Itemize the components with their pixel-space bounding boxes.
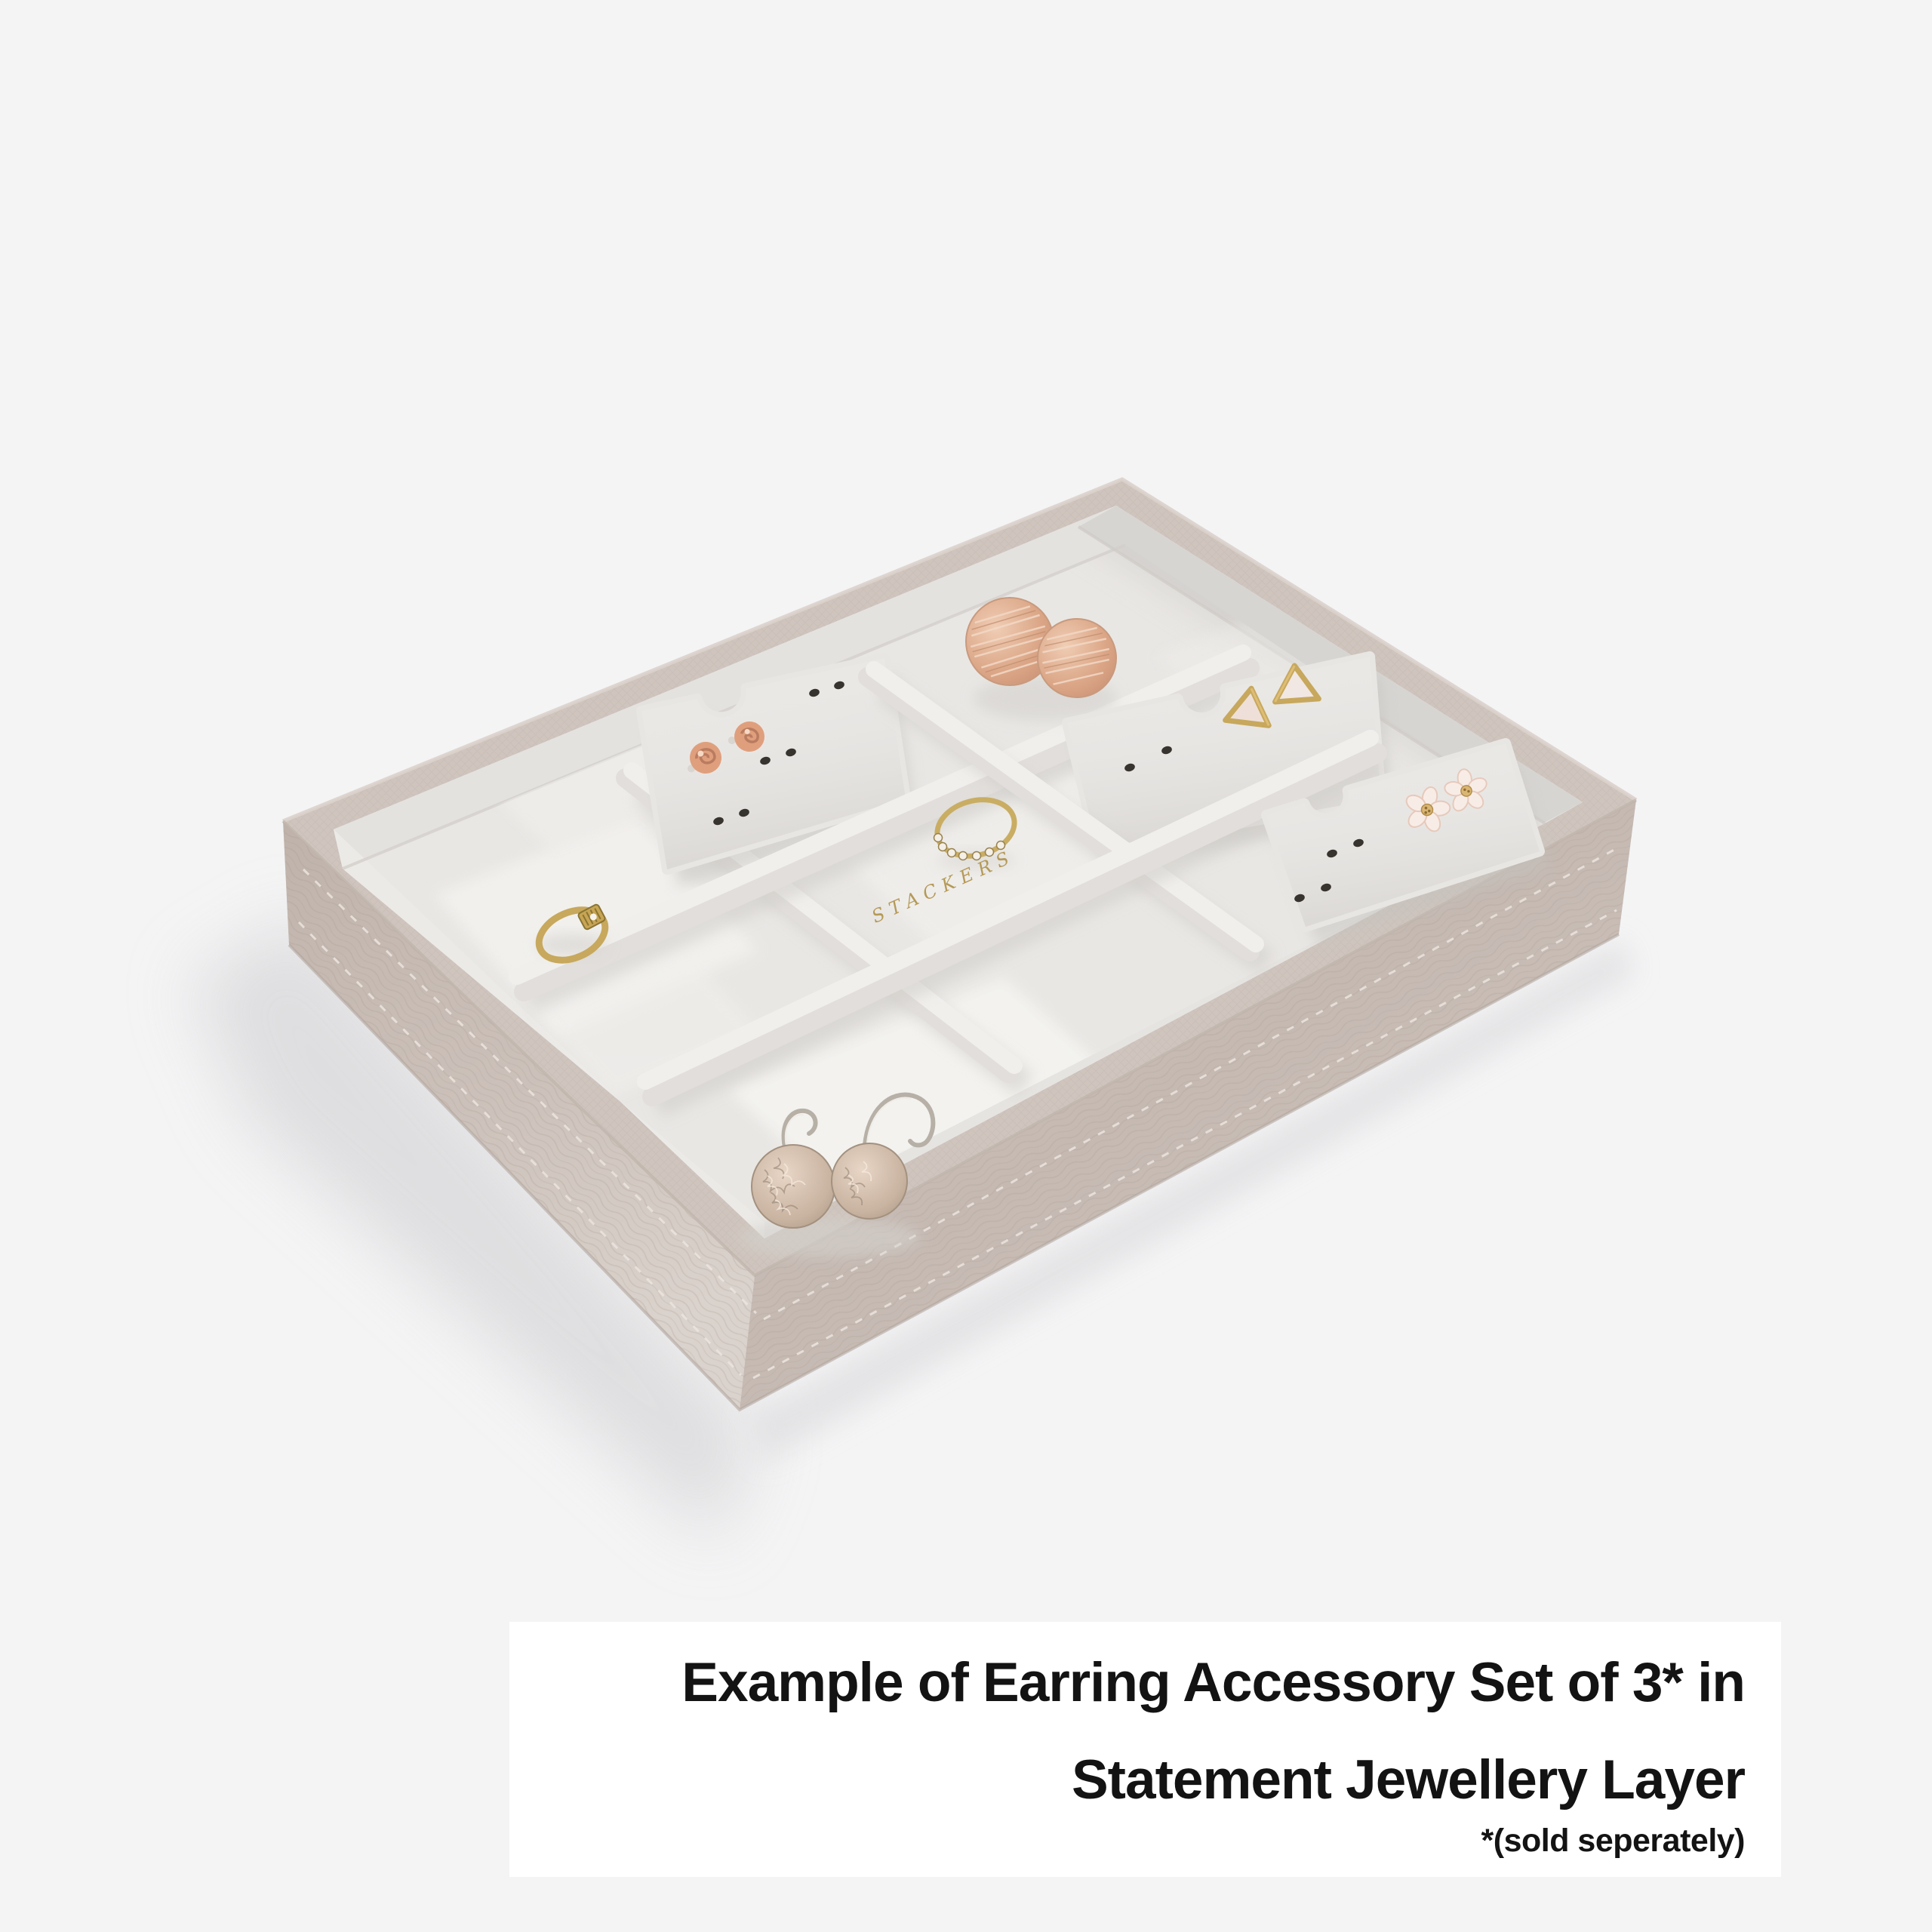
- caption-footnote: *(sold seperately): [509, 1823, 1745, 1860]
- caption-line-2: Statement Jewellery Layer: [509, 1752, 1745, 1807]
- caption-line-1: Example of Earring Accessory Set of 3* i…: [509, 1655, 1745, 1710]
- caption-box: Example of Earring Accessory Set of 3* i…: [509, 1622, 1781, 1877]
